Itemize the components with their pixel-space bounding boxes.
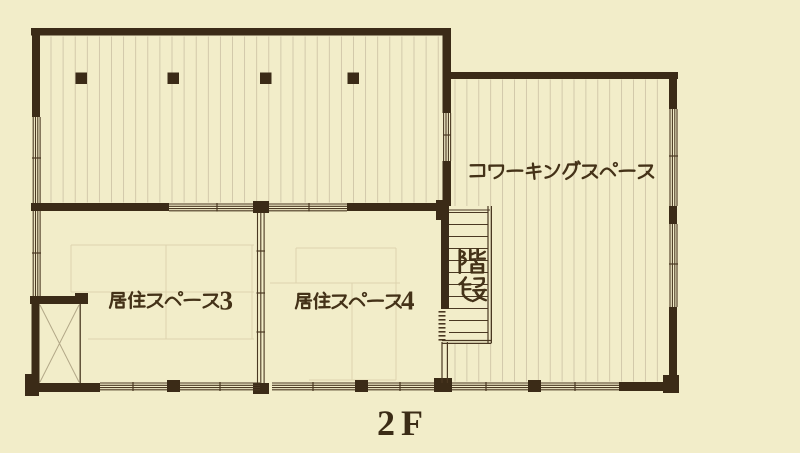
svg-text:4: 4 [401, 286, 415, 316]
svg-text:3: 3 [220, 286, 234, 316]
svg-text:2F: 2F [377, 403, 429, 443]
